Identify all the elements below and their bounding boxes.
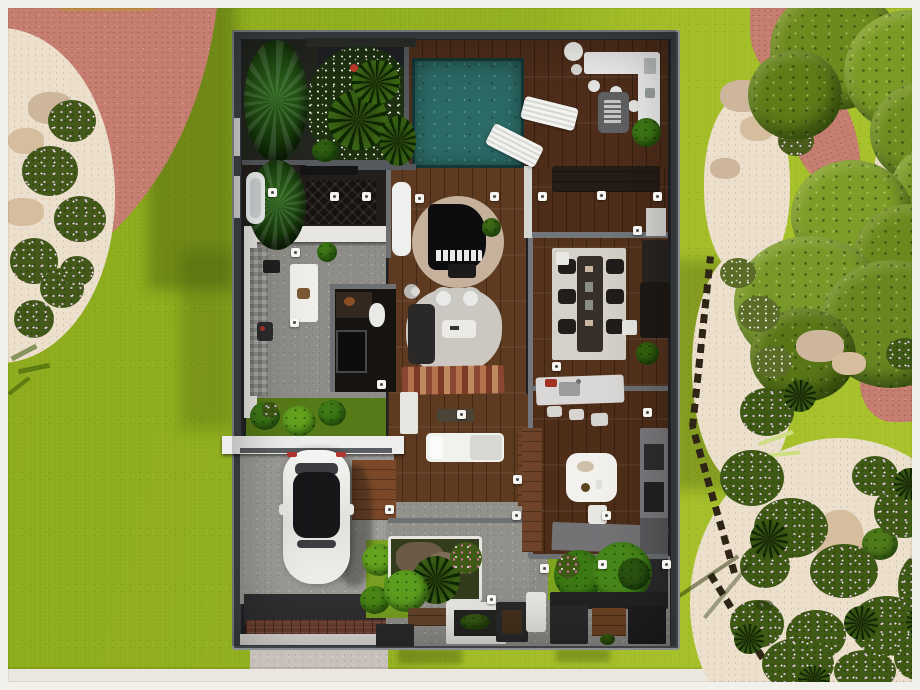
lamp-post-shadow-blob	[755, 600, 773, 610]
toilet[interactable]	[369, 303, 385, 327]
kitchen-sink[interactable]	[559, 382, 580, 396]
dining-chair-4[interactable]	[606, 259, 624, 274]
outdoor-shower-fixture[interactable]	[257, 322, 273, 341]
bathtub-basin	[250, 178, 261, 218]
island-plate	[577, 461, 594, 472]
kitchen-stool-1[interactable]	[547, 406, 562, 418]
wall-bath-top	[330, 284, 396, 289]
car-mirror-right	[347, 504, 354, 515]
kitchen-cabinets-left[interactable]	[522, 428, 542, 552]
courtyard-palm-2[interactable]	[380, 116, 416, 166]
ceiling-light-marker	[662, 560, 671, 569]
purple-flowers-11[interactable]	[852, 456, 898, 496]
white-flower-cluster-2[interactable]	[754, 346, 792, 378]
clothes-rack[interactable]	[300, 166, 358, 175]
white-flower-cluster-3[interactable]	[720, 258, 756, 288]
white-flower-cluster-1[interactable]	[738, 296, 780, 332]
white-shelf-dining-corner[interactable]	[646, 208, 666, 236]
flower-cluster-topleft-7[interactable]	[60, 256, 94, 286]
car-mirror-left	[279, 504, 286, 515]
ceiling-light-marker	[290, 318, 299, 327]
ball-pendant-lamp-small[interactable]	[571, 64, 582, 75]
bath-copper-basin	[344, 297, 355, 306]
kitchen-island[interactable]	[566, 453, 617, 502]
bar-stool-1[interactable]	[588, 80, 600, 92]
floor-lamp-living[interactable]	[411, 287, 420, 296]
purple-flowers-2[interactable]	[720, 450, 784, 506]
spiky-plant-3[interactable]	[844, 606, 878, 640]
wall-bath-left	[330, 288, 335, 392]
dining-chair-5[interactable]	[606, 289, 624, 304]
rock-right-top-3	[710, 158, 740, 179]
kitchen-appliance-1[interactable]	[644, 444, 664, 470]
purple-flowers-4[interactable]	[810, 544, 878, 598]
front-bed-pink-flowers[interactable]	[450, 542, 482, 574]
porch-pink-flowers[interactable]	[556, 554, 580, 578]
car-taillight-right	[336, 452, 346, 457]
sofa-dark[interactable]	[408, 304, 435, 364]
ceiling-light-marker	[362, 192, 371, 201]
spiky-plant-6[interactable]	[798, 666, 830, 690]
ceiling-light-marker	[268, 188, 277, 197]
island-food	[581, 483, 590, 492]
porch-pillar-left	[550, 606, 588, 644]
planter-dark-1[interactable]	[376, 624, 414, 647]
shower-stall[interactable]	[336, 330, 367, 373]
credenza-2[interactable]	[640, 282, 670, 338]
dining-centerpiece-2	[585, 282, 593, 292]
spiky-plant-4[interactable]	[894, 468, 920, 500]
deck-bench[interactable]	[552, 166, 660, 192]
kitchen-counter-corner[interactable]	[640, 518, 668, 554]
credenza-1[interactable]	[642, 240, 668, 284]
dining-chair-2[interactable]	[558, 289, 576, 304]
window-left-wall-1	[234, 118, 240, 156]
island-jar	[596, 480, 602, 489]
conifer-tree-1[interactable]	[244, 40, 308, 162]
dining-centerpiece-3	[585, 300, 593, 310]
grill-tray	[604, 100, 621, 125]
ceiling-light-marker	[513, 475, 522, 484]
ceiling-light-marker	[540, 564, 549, 573]
piano-bench[interactable]	[448, 264, 476, 278]
ceiling-light-marker	[633, 226, 642, 235]
bed-sheet	[470, 435, 502, 460]
side-table-dining-2[interactable]	[556, 252, 569, 265]
courtyard-red-flower[interactable]	[350, 64, 358, 72]
flower-cluster-topleft-2[interactable]	[22, 146, 78, 196]
dining-chair-3[interactable]	[558, 319, 576, 334]
hall-door-panel[interactable]	[400, 392, 418, 434]
front-bed-bush[interactable]	[384, 570, 428, 612]
window-left-wall-2	[234, 176, 240, 218]
garage-white-threshold	[240, 634, 388, 645]
outdoor-shower-knob	[260, 326, 265, 331]
purple-flowers-15[interactable]	[834, 650, 896, 690]
courtyard-table-item	[297, 288, 310, 299]
porch-white-bench[interactable]	[526, 592, 546, 632]
wall-gardenbed-topstrip	[306, 38, 416, 47]
ceiling-light-marker	[512, 511, 521, 520]
rock-right-mid-2	[832, 352, 866, 375]
ceiling-light-marker	[377, 380, 386, 389]
purple-flowers-13[interactable]	[886, 338, 920, 370]
flower-cluster-topleft-6[interactable]	[14, 300, 54, 338]
spiky-plant-5[interactable]	[734, 624, 764, 654]
lawn-shadow-front-1	[398, 648, 462, 664]
cut-object-top-edge	[58, 0, 156, 11]
porch-small-plant[interactable]	[600, 634, 615, 645]
ceiling-light-marker	[415, 194, 424, 203]
spiky-plant-1[interactable]	[784, 380, 816, 412]
courtyard-palm-3[interactable]	[352, 60, 400, 104]
wall-piano-dining-upper	[524, 166, 532, 238]
side-table-dining-1[interactable]	[622, 320, 637, 335]
deck-potted-plant[interactable]	[632, 118, 661, 147]
ceiling-light-marker	[487, 595, 496, 604]
kitchen-stool-2[interactable]	[569, 409, 584, 421]
car-roof-glass	[293, 472, 340, 538]
ceiling-light-marker	[597, 191, 606, 200]
ceiling-light-marker	[602, 511, 611, 520]
porch-pillar-right	[628, 606, 666, 644]
tree-canopy-3[interactable]	[748, 50, 842, 140]
doormat[interactable]	[437, 409, 474, 422]
ceiling-light-marker	[490, 192, 499, 201]
car-taillight-left	[287, 452, 297, 457]
armchair-1[interactable]	[432, 287, 455, 310]
lawn-shadow-house-left-2	[180, 250, 236, 430]
courtyard-potted-plant[interactable]	[317, 242, 337, 262]
kitchen-appliance-2[interactable]	[644, 482, 664, 512]
bath-vanity[interactable]	[336, 292, 372, 318]
dining-centerpiece-4	[585, 320, 593, 326]
ceiling-light-marker	[643, 408, 652, 417]
porch-wood-step	[592, 608, 626, 636]
white-chaise[interactable]	[392, 182, 411, 256]
bar-item[interactable]	[645, 88, 655, 98]
ceiling-light-marker	[538, 192, 547, 201]
plant-dining[interactable]	[636, 342, 659, 365]
hall-runner-rug[interactable]	[402, 365, 504, 395]
planter-dark-2-soil	[502, 610, 522, 634]
courtyard-coffee-maker[interactable]	[263, 260, 280, 273]
bed-pillow	[430, 436, 443, 459]
ceiling-light-marker	[457, 410, 466, 419]
coffee-table-remote	[450, 326, 459, 330]
ceiling-light-marker	[330, 192, 339, 201]
ceiling-light-marker	[598, 560, 607, 569]
bar-stool-3[interactable]	[628, 100, 640, 112]
bar-sink[interactable]	[644, 58, 656, 74]
courtyard-flower-dot[interactable]	[262, 402, 278, 418]
ceiling-light-marker	[653, 192, 662, 201]
wall-piano-dining-lower	[528, 238, 533, 388]
lawn-shadow-front-2	[556, 648, 610, 662]
dark-bed-rug[interactable]	[306, 180, 376, 224]
planter-white-sprigs	[460, 614, 490, 630]
courtyard-small-bush[interactable]	[312, 140, 338, 162]
rock-topleft-4	[2, 198, 44, 226]
ceiling-light-marker	[291, 248, 300, 257]
porch-plant-dark[interactable]	[618, 558, 650, 590]
kitchen-faucet	[576, 379, 581, 384]
courtyard-bush-2[interactable]	[282, 406, 316, 436]
kitchen-stool-3[interactable]	[591, 413, 608, 427]
wall-piano-left	[386, 168, 391, 258]
dining-centerpiece-1	[585, 266, 593, 272]
ceiling-light-marker	[385, 505, 394, 514]
plant-by-piano[interactable]	[482, 218, 501, 237]
car-rear-window	[297, 540, 336, 548]
flower-cluster-topleft-1[interactable]	[48, 100, 96, 142]
coffee-table[interactable]	[442, 320, 476, 338]
ceiling-light-marker	[552, 362, 561, 371]
wall-bedroom2-bottom	[388, 518, 530, 523]
aerial-house-scene	[0, 0, 920, 690]
grand-piano-keys	[434, 250, 482, 261]
flower-cluster-topleft-3[interactable]	[54, 196, 106, 242]
armchair-2[interactable]	[459, 287, 482, 310]
courtyard-bush-3[interactable]	[318, 400, 346, 426]
spiky-plant-2[interactable]	[750, 520, 788, 558]
kitchen-red-pot[interactable]	[545, 379, 557, 387]
ball-pendant-lamp[interactable]	[564, 42, 583, 61]
